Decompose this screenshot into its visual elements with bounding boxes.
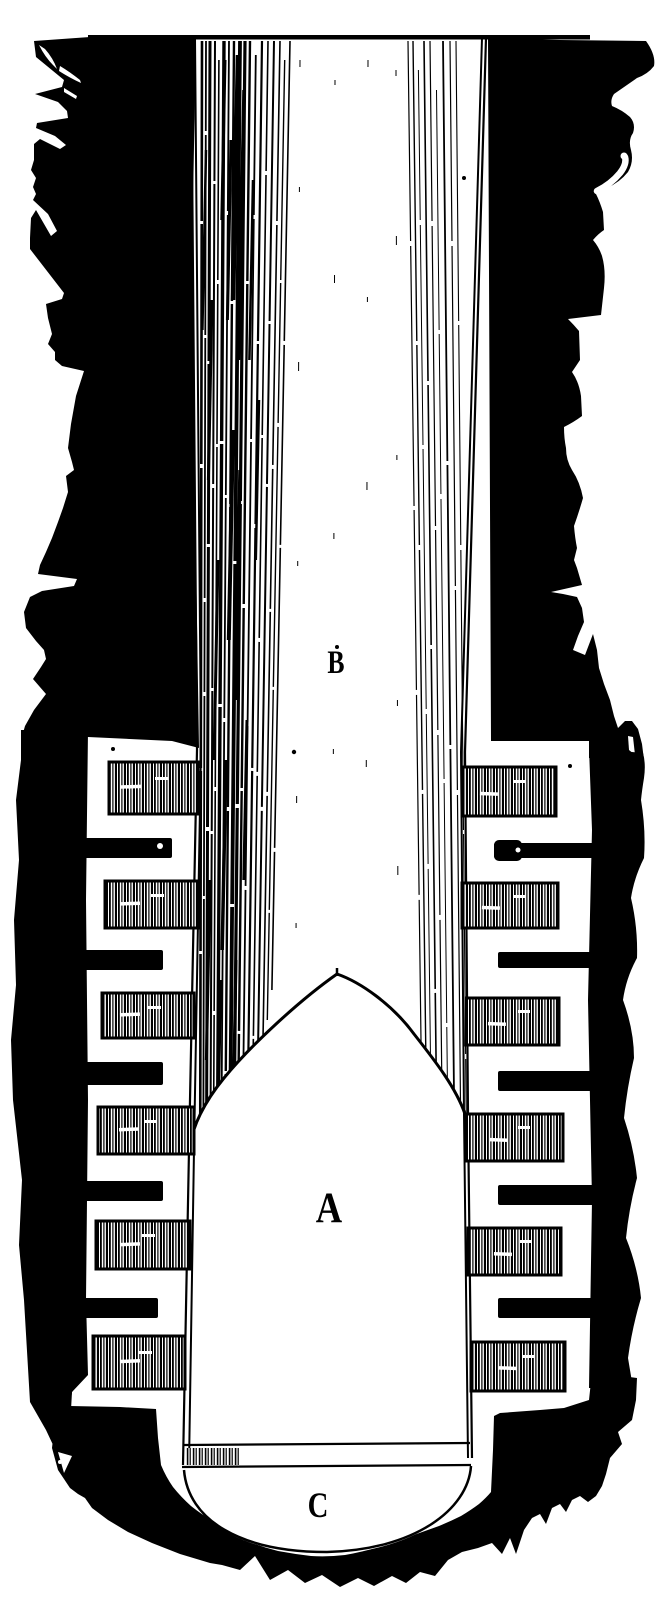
svg-text:A: A [316, 1183, 343, 1231]
svg-text:B: B [327, 645, 344, 681]
svg-text:C: C [308, 1486, 329, 1526]
